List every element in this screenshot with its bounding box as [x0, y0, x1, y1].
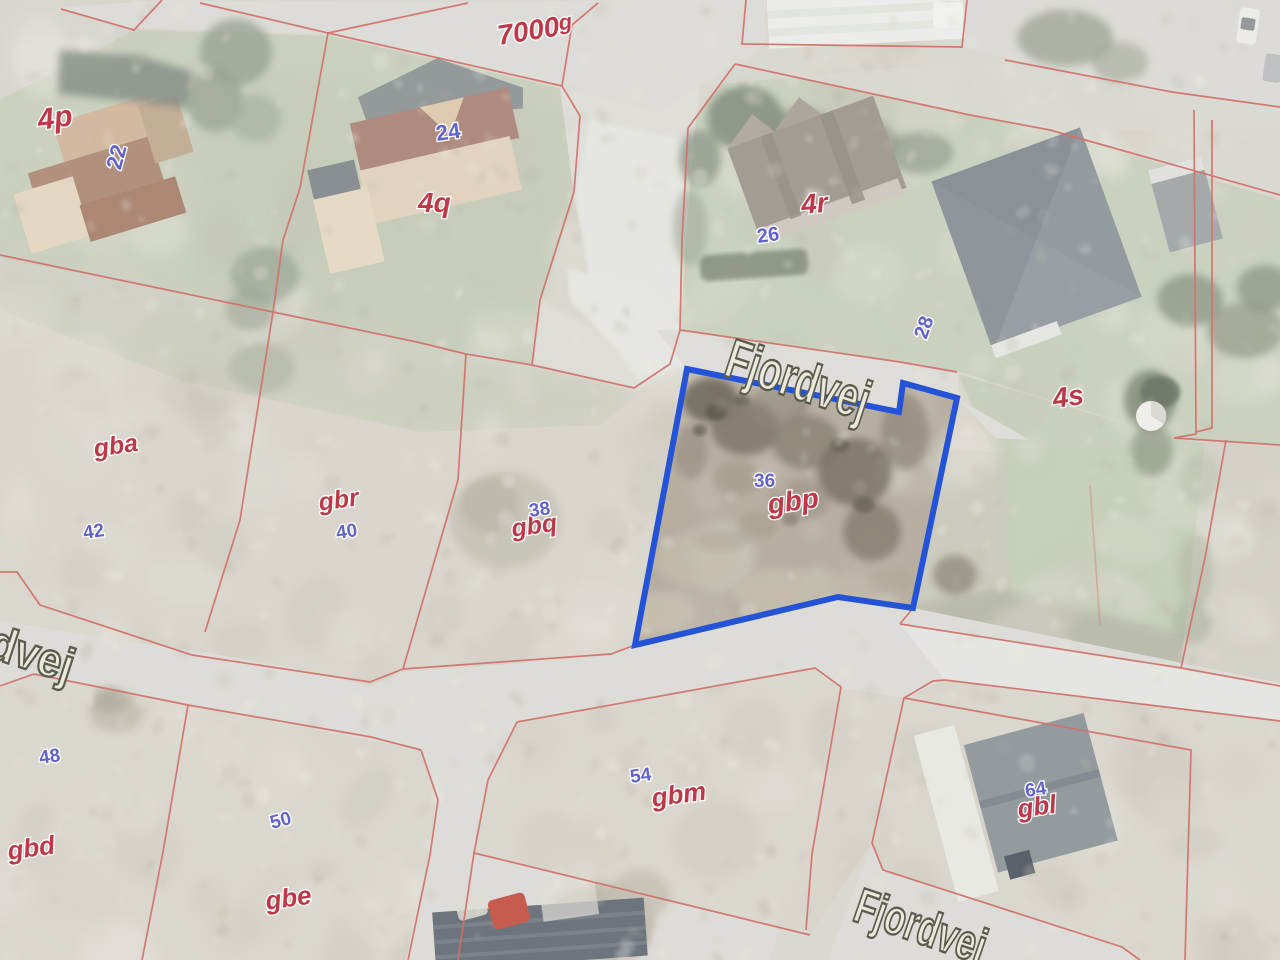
- svg-text:4s: 4s: [1050, 379, 1086, 414]
- svg-text:26: 26: [756, 223, 781, 248]
- svg-text:54: 54: [629, 764, 653, 788]
- svg-text:64: 64: [1024, 778, 1048, 802]
- svg-text:48: 48: [38, 745, 62, 769]
- svg-text:42: 42: [82, 520, 106, 544]
- svg-text:40: 40: [335, 520, 359, 544]
- svg-text:24: 24: [434, 118, 462, 146]
- svg-text:gbr: gbr: [316, 483, 362, 517]
- svg-text:4p: 4p: [34, 99, 74, 137]
- svg-text:38: 38: [528, 498, 552, 522]
- svg-text:4q: 4q: [417, 187, 451, 218]
- svg-text:36: 36: [754, 471, 775, 492]
- svg-text:4r: 4r: [799, 187, 831, 220]
